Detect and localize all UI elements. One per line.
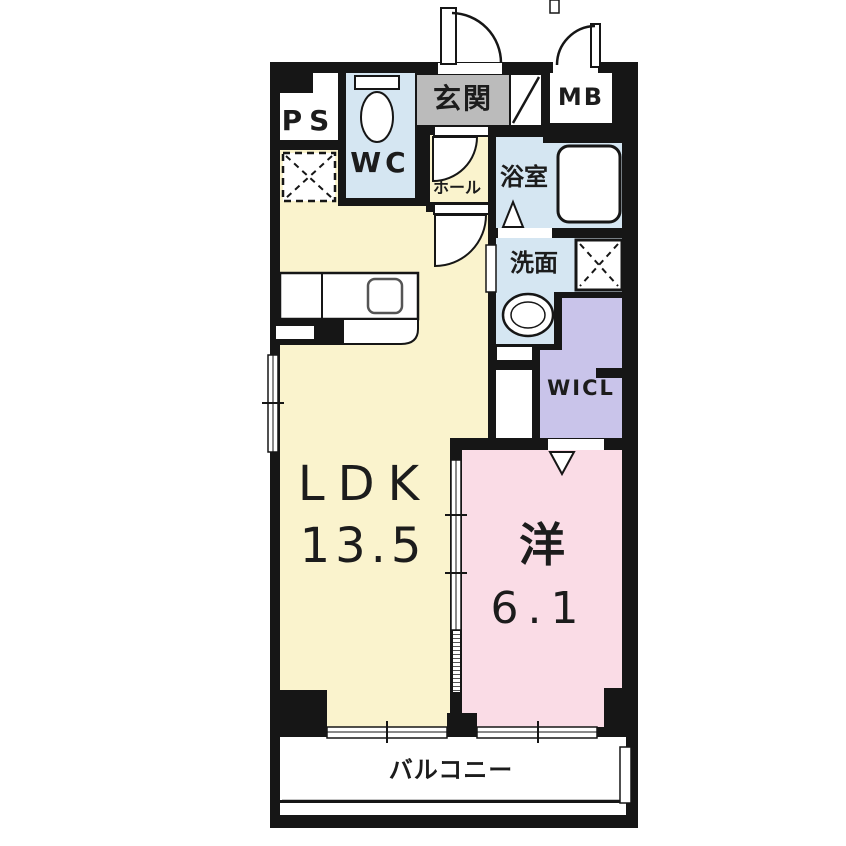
mb-door-leaf xyxy=(591,24,600,67)
toilet-tank xyxy=(355,76,399,89)
label-hall: ホール xyxy=(426,180,488,197)
label-genkan: 玄関 xyxy=(417,84,509,113)
label-balcony: バルコニー xyxy=(374,758,528,783)
balcony-side-slot xyxy=(620,747,631,803)
label-western-room: 洋 xyxy=(514,521,570,569)
hall-lower-door-arc xyxy=(435,215,486,266)
label-ldk-area: 13.5 xyxy=(278,521,448,571)
label-washroom: 洗面 xyxy=(503,251,565,276)
entrance-door-leaf xyxy=(441,8,456,64)
label-wc: WC xyxy=(342,148,418,177)
entrance-door-arc xyxy=(452,13,501,63)
label-ps: PS xyxy=(280,106,338,135)
mb-door-jamb xyxy=(550,0,559,13)
toilet-bowl xyxy=(361,92,393,142)
wicl-door-triangle xyxy=(550,452,574,474)
label-western-area: 6.1 xyxy=(482,586,596,632)
bathroom-door-triangle xyxy=(503,202,523,227)
label-bathroom: 浴室 xyxy=(494,165,554,190)
mb-door-arc xyxy=(557,26,595,65)
bathtub xyxy=(558,146,620,222)
hall-lower-door-leaf xyxy=(434,204,489,214)
hall-upper-door-arc xyxy=(433,137,477,181)
fixtures-layer xyxy=(0,0,846,846)
kitchen-wall-opening xyxy=(276,326,314,339)
floor-plan: PS WC 玄関 MB ホール 浴室 洗面 WICL LDK 13.5 洋 6.… xyxy=(0,0,846,846)
label-wicl: WICL xyxy=(538,377,624,399)
kitchen-sink xyxy=(368,279,402,313)
hall-upper-door-leaf xyxy=(434,126,489,136)
label-ldk: LDK xyxy=(288,459,442,509)
label-mb: MB xyxy=(550,85,612,110)
shoe-cabinet-slash xyxy=(513,77,539,123)
washroom-door xyxy=(486,245,496,292)
